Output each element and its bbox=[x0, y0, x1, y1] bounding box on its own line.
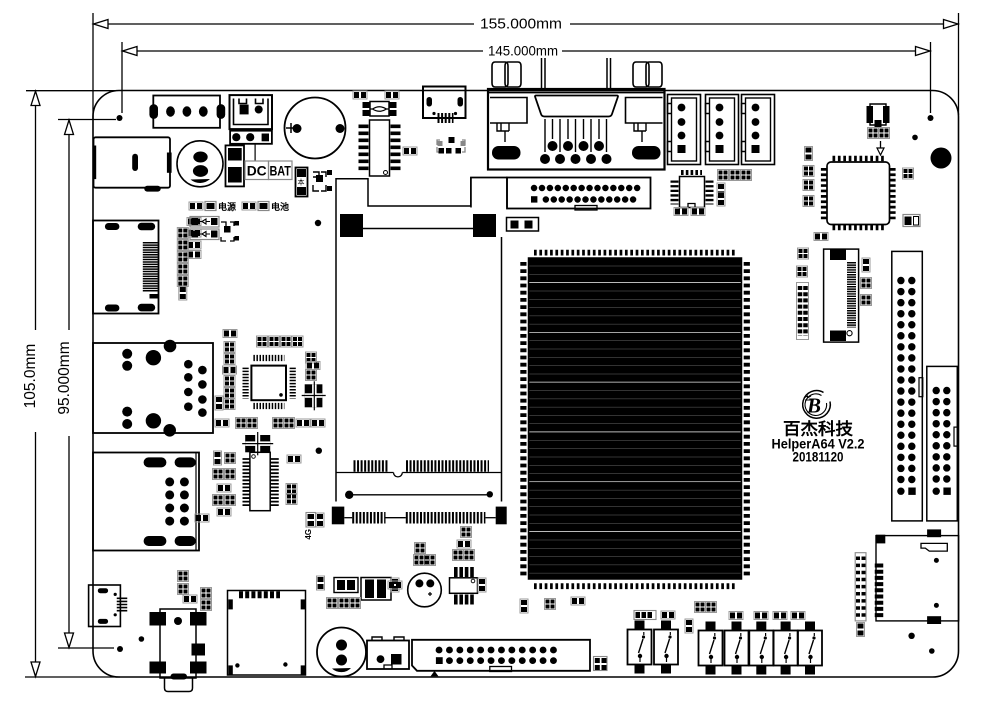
svg-text:电池: 电池 bbox=[271, 201, 289, 212]
svg-text:本: 本 bbox=[298, 178, 305, 187]
svg-text:4G: 4G bbox=[304, 529, 313, 540]
svg-text:BAT: BAT bbox=[269, 163, 291, 179]
svg-text:电源: 电源 bbox=[218, 201, 236, 212]
svg-text:105.0mm: 105.0mm bbox=[22, 344, 39, 409]
svg-text:百杰科技: 百杰科技 bbox=[783, 419, 854, 439]
svg-text:95.000mm: 95.000mm bbox=[56, 341, 73, 414]
svg-text:155.000mm: 155.000mm bbox=[480, 16, 562, 33]
svg-text:145.000mm: 145.000mm bbox=[488, 43, 558, 59]
svg-text:20181120: 20181120 bbox=[793, 449, 844, 465]
svg-text:DC: DC bbox=[247, 163, 267, 179]
